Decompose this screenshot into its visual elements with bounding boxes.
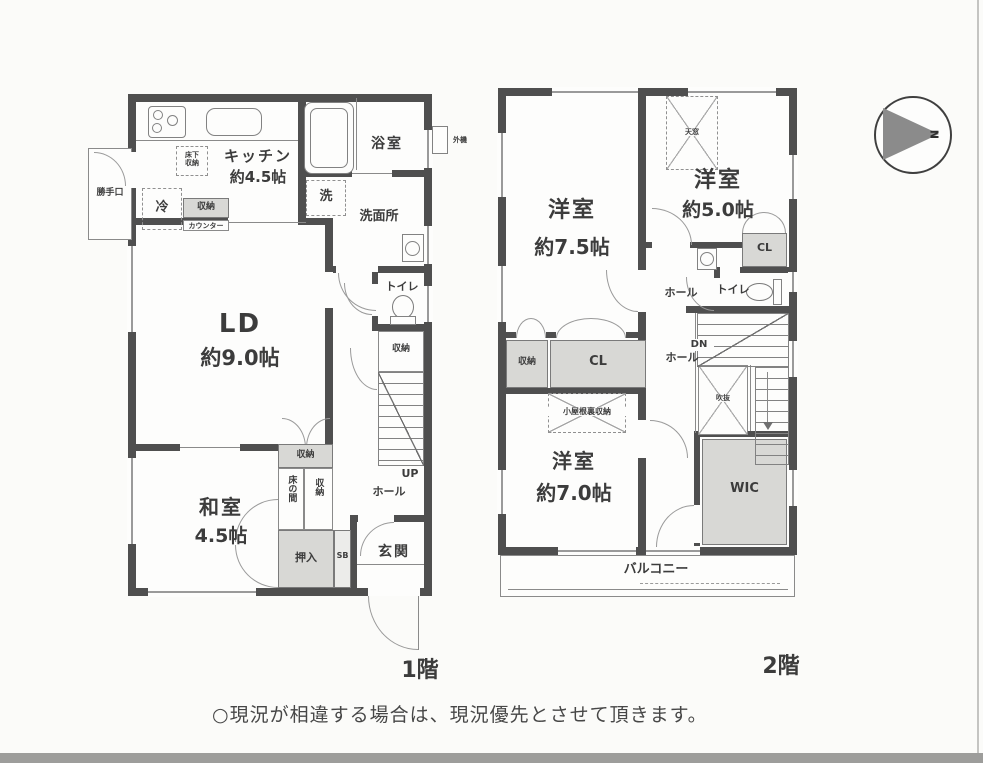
washitsu-name: 和室 bbox=[188, 496, 254, 519]
staircase bbox=[755, 367, 789, 465]
hall-upper-label: ホール bbox=[656, 287, 706, 300]
line bbox=[750, 365, 751, 431]
closet-label: CL bbox=[550, 355, 646, 370]
window bbox=[497, 266, 507, 322]
kitchen-sink bbox=[206, 108, 262, 136]
door-opening bbox=[358, 515, 394, 522]
void-label: 吹抜 bbox=[706, 394, 740, 402]
door-opening bbox=[638, 420, 646, 458]
scan-edge bbox=[977, 0, 979, 763]
western70-size: 約7.0帖 bbox=[528, 482, 620, 505]
compass: N bbox=[874, 96, 952, 174]
door-track bbox=[352, 173, 392, 174]
western75-size: 約7.5帖 bbox=[522, 236, 622, 259]
western50-name: 洋室 bbox=[688, 168, 748, 193]
door-opening bbox=[128, 152, 136, 188]
window bbox=[127, 458, 137, 544]
backdoor-label: 勝手口 bbox=[90, 188, 130, 198]
storage-label: 収納 bbox=[506, 357, 548, 367]
counter-line bbox=[228, 222, 306, 223]
genkan-step bbox=[357, 564, 424, 565]
kitchen-name: キッチン bbox=[218, 148, 298, 165]
window bbox=[148, 587, 256, 597]
wall bbox=[546, 332, 556, 338]
door-opening bbox=[638, 270, 646, 312]
disclaimer-note: ○現況が相違する場合は、現況優先とさせて頂きます。 bbox=[212, 700, 812, 727]
toilet-tank bbox=[390, 316, 416, 325]
door-leaf bbox=[418, 596, 419, 650]
floor-plan-page: 勝手口 床下収納 冷 収納 カウンター 洗 外機 収納 UP 収納 床の間 収納… bbox=[0, 0, 983, 763]
scan-bar bbox=[0, 753, 983, 763]
entrance-opening bbox=[368, 588, 420, 596]
counter-label: カウンター bbox=[183, 222, 229, 230]
genkan-label: 玄関 bbox=[370, 544, 418, 560]
wall bbox=[626, 332, 646, 338]
wall bbox=[372, 324, 432, 331]
counter-edge bbox=[136, 140, 298, 141]
western70-name: 洋室 bbox=[542, 450, 606, 473]
window bbox=[497, 470, 507, 514]
stair-storage-label: 収納 bbox=[384, 344, 418, 354]
stair-arrow-line bbox=[767, 372, 768, 422]
washroom-label: 洗面所 bbox=[350, 210, 408, 225]
underfloor-storage-label: 床下収納 bbox=[182, 151, 202, 167]
window bbox=[423, 226, 433, 264]
bathtub-inner bbox=[310, 108, 348, 168]
window bbox=[423, 286, 433, 322]
bath-label: 浴室 bbox=[366, 136, 408, 152]
window bbox=[127, 246, 137, 332]
laundry-label: 洗 bbox=[306, 190, 346, 205]
wall bbox=[325, 218, 333, 448]
storage-side-label: 収納 bbox=[313, 478, 323, 496]
skylight-label: 天窓 bbox=[676, 128, 708, 136]
balcony-inner-line bbox=[508, 589, 788, 590]
tokonoma-label: 床の間 bbox=[286, 475, 296, 502]
door-opening bbox=[694, 505, 700, 543]
balcony-label: バルコニー bbox=[616, 563, 696, 578]
wall bbox=[128, 94, 432, 102]
up-label: UP bbox=[392, 468, 428, 481]
window bbox=[788, 272, 798, 292]
stair-stringer bbox=[378, 372, 424, 466]
line bbox=[695, 313, 696, 433]
oshiire-label: 押入 bbox=[278, 552, 334, 565]
window bbox=[552, 87, 638, 97]
closet-small-label: CL bbox=[742, 242, 787, 255]
water-heater-box bbox=[432, 126, 448, 154]
fridge-label: 冷 bbox=[142, 201, 182, 216]
kitchen-size: 約4.5帖 bbox=[220, 169, 296, 186]
window bbox=[497, 133, 507, 197]
storage-top-label: 収納 bbox=[278, 450, 333, 460]
kitchen-storage-label: 収納 bbox=[183, 202, 229, 212]
floor2-caption: 2階 bbox=[753, 654, 809, 679]
western75-name: 洋室 bbox=[540, 198, 604, 223]
toilet-label: トイレ bbox=[382, 281, 422, 294]
wall bbox=[502, 332, 516, 338]
attic-storage-label: 小屋根裏収納 bbox=[546, 407, 628, 416]
door-arc bbox=[368, 596, 418, 650]
ld-name: LD bbox=[208, 310, 272, 340]
toilet-label: トイレ bbox=[714, 284, 752, 297]
stove-burner bbox=[167, 115, 178, 126]
washbasin-bowl bbox=[700, 252, 714, 266]
stair-arrow-head bbox=[763, 422, 773, 430]
compass-north-label: N bbox=[927, 127, 940, 141]
door-track bbox=[180, 447, 240, 448]
shoebox-label: SB bbox=[333, 551, 352, 560]
hall-label: ホール bbox=[366, 486, 412, 499]
line bbox=[356, 98, 357, 170]
window bbox=[788, 341, 798, 377]
door-opening bbox=[325, 272, 333, 308]
washitsu-size: 4.5帖 bbox=[190, 526, 252, 548]
western50-size: 約5.0帖 bbox=[676, 200, 760, 222]
toilet-tank bbox=[773, 279, 782, 305]
balcony-drain-line bbox=[640, 583, 780, 584]
wall bbox=[638, 88, 646, 547]
wic-label: WIC bbox=[702, 482, 787, 497]
stove-burner bbox=[152, 123, 162, 133]
hall-lower-label: ホール bbox=[658, 352, 706, 365]
dn-label: DN bbox=[684, 339, 714, 351]
window bbox=[788, 155, 798, 199]
water-heater-label: 外機 bbox=[450, 136, 470, 144]
stove-burner bbox=[153, 110, 163, 120]
washbasin-bowl bbox=[405, 241, 420, 256]
floor1-caption: 1階 bbox=[392, 658, 448, 683]
window bbox=[788, 470, 798, 506]
ld-size: 約9.0帖 bbox=[190, 346, 290, 370]
